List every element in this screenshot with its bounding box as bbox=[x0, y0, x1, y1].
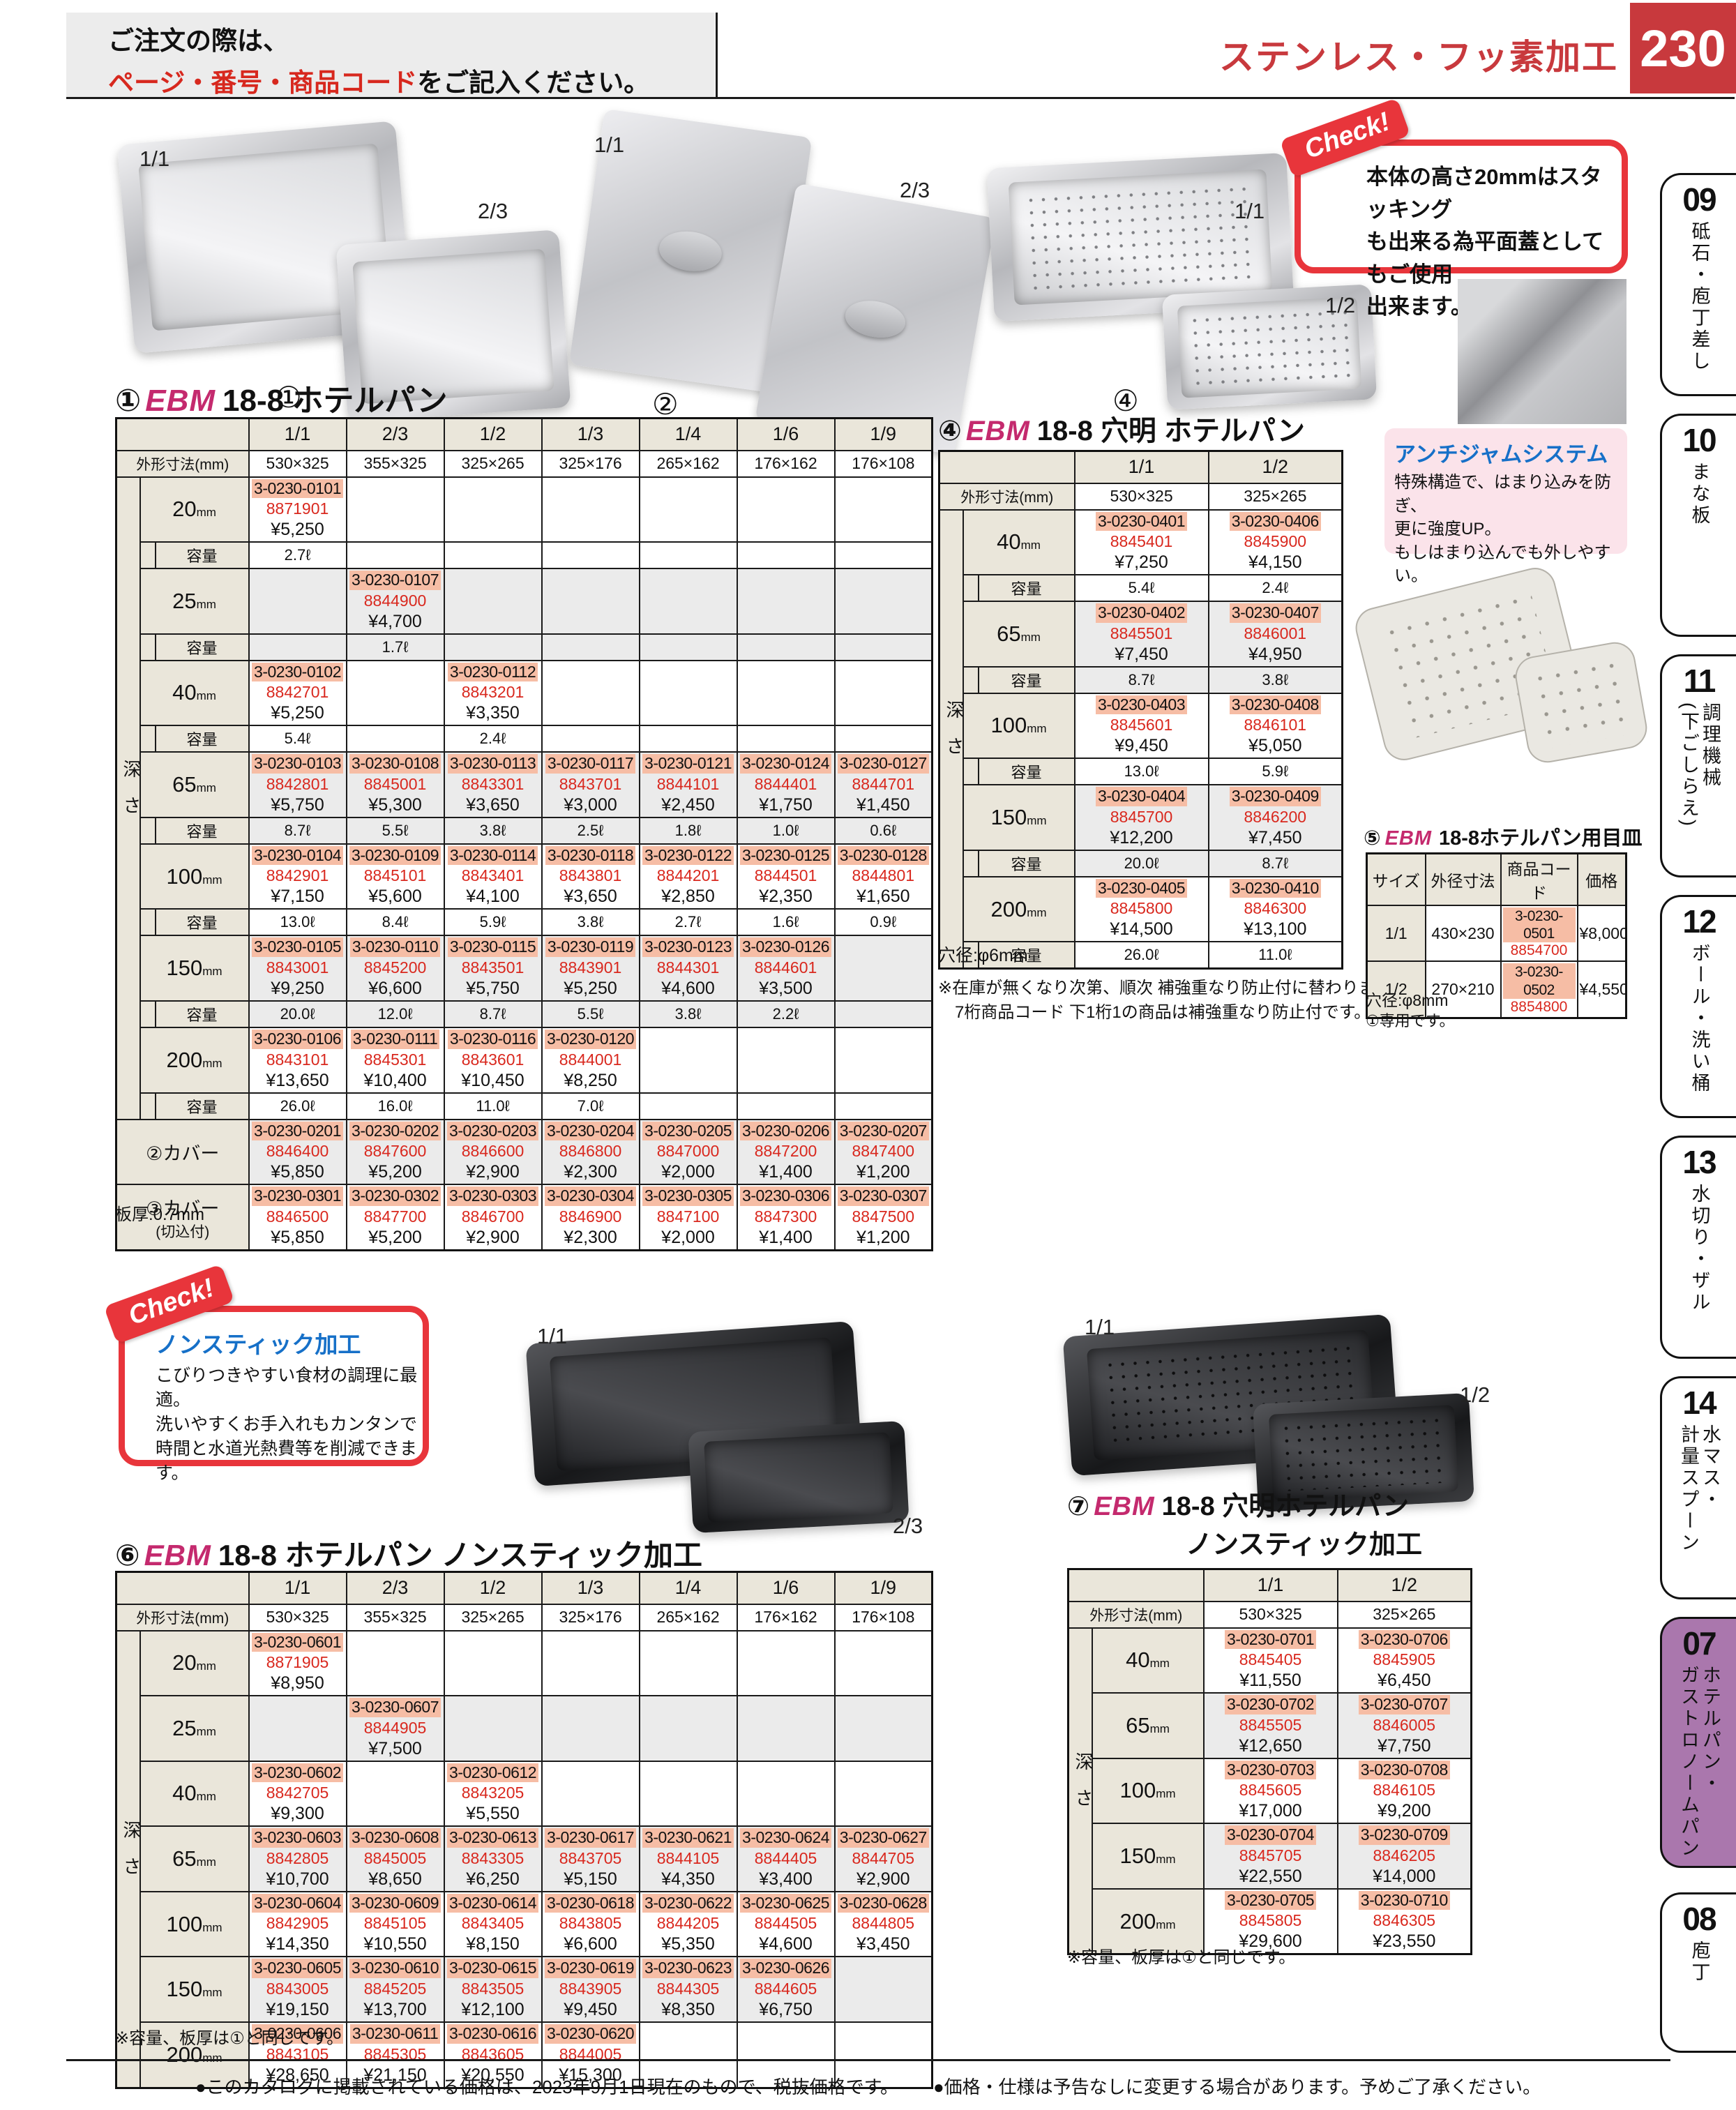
product-cell-empty bbox=[640, 1027, 737, 1093]
antijam-feature-box: アンチジャムシステム 特殊構造で、はまり込みを防ぎ、 更に強度UP。 もしはまり… bbox=[1384, 428, 1627, 554]
capacity-cell: 2.5ℓ bbox=[542, 817, 640, 844]
plate-thickness-note: 板厚:0.7mm bbox=[115, 1203, 204, 1228]
tab-label: ホテルパン・ ガストロノームパン bbox=[1677, 1665, 1721, 1860]
dims-header: 外形寸法(mm) bbox=[116, 1604, 249, 1631]
product-cell-empty bbox=[835, 568, 933, 634]
dim-cell: 325×265 bbox=[1209, 483, 1343, 510]
product-cell-empty bbox=[542, 661, 640, 726]
capacity-label: 容量 bbox=[156, 1093, 249, 1120]
dim-cell: 355×325 bbox=[347, 451, 444, 477]
product-cell: 3-0230-04098846200¥7,450 bbox=[1209, 785, 1343, 850]
product-cell-empty bbox=[835, 1696, 933, 1761]
column-header: 2/3 bbox=[347, 1572, 444, 1604]
capacity-cell bbox=[835, 634, 933, 661]
product-cell: 3-0230-01138843301¥3,650 bbox=[444, 752, 542, 817]
sidebar-tab-13: 13水切り・ザル bbox=[1660, 1136, 1736, 1359]
capacity-cell: 13.0ℓ bbox=[1075, 758, 1209, 785]
dims-header: 外形寸法(mm) bbox=[116, 451, 249, 477]
product-cell: 3-0230-06028842705¥9,300 bbox=[249, 1761, 347, 1827]
price-cell: ¥4,550 bbox=[1578, 961, 1626, 1018]
dim-cell: 176×162 bbox=[737, 451, 835, 477]
product-cell: 3-0230-01178843701¥3,000 bbox=[542, 752, 640, 817]
section-number: ① bbox=[115, 384, 141, 418]
capacity-label: 容量 bbox=[156, 725, 249, 752]
column-header: 外径寸法 bbox=[1426, 854, 1501, 906]
tab-number: 07 bbox=[1682, 1625, 1715, 1662]
pan-size-label: 1/1 bbox=[1085, 1315, 1115, 1340]
spacer-cell bbox=[140, 817, 156, 844]
product-cell: 3-0230-04018845401¥7,250 bbox=[1075, 510, 1209, 575]
capacity-cell: 0.6ℓ bbox=[835, 817, 933, 844]
capacity-cell: 2.4ℓ bbox=[1209, 575, 1343, 601]
product-cell: 3-0230-03058847100¥2,000 bbox=[640, 1184, 737, 1250]
product-cell: 3-0230-01038842801¥5,750 bbox=[249, 752, 347, 817]
product-cell-empty bbox=[835, 1027, 933, 1093]
product-cell: 3-0230-04038845601¥9,450 bbox=[1075, 693, 1209, 759]
capacity-cell: 3.8ℓ bbox=[1209, 667, 1343, 693]
depth-label: 150mm bbox=[963, 785, 1075, 850]
dim-cell: 325×176 bbox=[542, 1604, 640, 1631]
column-header: 1/9 bbox=[835, 1572, 933, 1604]
column-header: 商品コード bbox=[1501, 854, 1578, 906]
product-cell: 3-0230-01248844401¥1,750 bbox=[737, 752, 835, 817]
product-cell: 3-0230-07108846305¥23,550 bbox=[1338, 1889, 1472, 1954]
product-cell: 3-0230-04068845900¥4,150 bbox=[1209, 510, 1343, 575]
product-cell-empty bbox=[737, 1696, 835, 1761]
depth-label: 40mm bbox=[963, 510, 1075, 575]
table-corner bbox=[116, 419, 249, 451]
product-cell: 3-0230-01168843601¥10,450 bbox=[444, 1027, 542, 1093]
tab-label: 調理機械 (下ごしらえ) bbox=[1677, 702, 1721, 829]
brand-logo: EBM bbox=[966, 416, 1030, 446]
depth-label: 150mm bbox=[1092, 1823, 1204, 1889]
section-title-1: ①EBM18-8 ホテルパン bbox=[115, 375, 448, 420]
column-header: 1/3 bbox=[542, 1572, 640, 1604]
product-cell-empty bbox=[835, 935, 933, 1001]
capacity-cell bbox=[640, 1093, 737, 1120]
product-cell-empty bbox=[737, 1761, 835, 1827]
product-cell-empty bbox=[737, 477, 835, 543]
capacity-label: 容量 bbox=[156, 817, 249, 844]
section-number: ④ bbox=[938, 416, 962, 446]
sidebar-tab-09: 09砥石・庖丁差し bbox=[1660, 173, 1736, 396]
product-cell-empty bbox=[835, 477, 933, 543]
footer-change-note: ●価格・仕様は予告なしに変更する場合があります。予めご了承ください。 bbox=[933, 2073, 1541, 2099]
product-cell: 3-0230-03038846700¥2,900 bbox=[444, 1184, 542, 1250]
capacity-cell bbox=[542, 725, 640, 752]
order-note-line2: ページ・番号・商品コードをご記入ください。 bbox=[108, 61, 715, 99]
cover-size-label: 2/3 bbox=[900, 178, 930, 203]
section-name: 18-8 ホテルパン bbox=[222, 384, 448, 418]
capacity-cell: 5.5ℓ bbox=[347, 817, 444, 844]
column-header: 1/1 bbox=[1204, 1569, 1338, 1602]
tab-number: 13 bbox=[1682, 1143, 1715, 1181]
product-cell-empty bbox=[444, 1696, 542, 1761]
product-cell-empty bbox=[249, 568, 347, 634]
capacity-cell: 0.9ℓ bbox=[835, 909, 933, 935]
column-header: 1/2 bbox=[444, 1572, 542, 1604]
capacity-cell: 1.7ℓ bbox=[347, 634, 444, 661]
depth-axis-label: 深さ bbox=[1069, 1628, 1092, 1954]
dims-header: 外形寸法(mm) bbox=[939, 483, 1075, 510]
capacity-cell: 8.7ℓ bbox=[444, 1001, 542, 1027]
depth-label: 200mm bbox=[1092, 1889, 1204, 1954]
capacity-cell: 2.7ℓ bbox=[640, 909, 737, 935]
sidebar-tab-08: 08庖丁 bbox=[1660, 1892, 1736, 2053]
tab-label: 水切り・ザル bbox=[1688, 1184, 1709, 1313]
dims-header: 外形寸法(mm) bbox=[1069, 1602, 1204, 1628]
product-cell: 3-0230-06078844905¥7,500 bbox=[347, 1696, 444, 1761]
capacity-label: 容量 bbox=[979, 758, 1075, 785]
tab-label: 砥石・庖丁差し bbox=[1688, 221, 1709, 372]
product-cell: 3-0230-06038842805¥10,700 bbox=[249, 1826, 347, 1892]
spacer-cell bbox=[140, 909, 156, 935]
capacity-cell bbox=[640, 634, 737, 661]
product-cell-empty bbox=[640, 477, 737, 543]
depth-label: 40mm bbox=[140, 661, 249, 726]
tab-label: ボール・洗い桶 bbox=[1688, 943, 1709, 1094]
column-header: 1/3 bbox=[542, 419, 640, 451]
spacer-cell bbox=[140, 634, 156, 661]
column-header: サイズ bbox=[1367, 854, 1426, 906]
dim-cell: 265×162 bbox=[640, 451, 737, 477]
size-cell: 1/1 bbox=[1367, 905, 1426, 961]
nonstick-title: ノンスティック加工 bbox=[156, 1326, 423, 1359]
product-cell: 3-0230-01208844001¥8,250 bbox=[542, 1027, 640, 1093]
table-corner bbox=[116, 1572, 249, 1604]
capacity-label: 容量 bbox=[979, 575, 1075, 601]
column-header: 1/1 bbox=[1075, 451, 1209, 483]
nonstick-pan-photo-2-3 bbox=[688, 1421, 909, 1533]
product-cell: 3-0230-02078847400¥1,200 bbox=[835, 1120, 933, 1185]
capacity-cell: 5.9ℓ bbox=[444, 909, 542, 935]
order-note-red: ページ・番号・商品コード bbox=[108, 68, 417, 97]
depth-label: 100mm bbox=[1092, 1758, 1204, 1824]
dim-cell: 530×325 bbox=[1075, 483, 1209, 510]
product-cell: 3-0230-01058843001¥9,250 bbox=[249, 935, 347, 1001]
order-note-box: ご注文の際は、 ページ・番号・商品コードをご記入ください。 bbox=[66, 13, 715, 98]
column-header: 1/9 bbox=[835, 419, 933, 451]
product-cell: 3-0230-06148843405¥8,150 bbox=[444, 1892, 542, 1957]
product-cell-empty bbox=[640, 568, 737, 634]
product-cell-empty bbox=[444, 1631, 542, 1696]
antijam-body: 特殊構造で、はまり込みを防ぎ、 更に強度UP。 もしはまり込んでも外しやすい。 bbox=[1394, 471, 1617, 588]
product-cell: 3-0230-06018871905¥8,950 bbox=[249, 1631, 347, 1696]
capacity-label: 容量 bbox=[156, 634, 249, 661]
footer-rule bbox=[66, 2059, 1670, 2061]
product-cell: 3-0230-06228844205¥5,350 bbox=[640, 1892, 737, 1957]
product-cell: 3-0230-04088846101¥5,050 bbox=[1209, 693, 1343, 759]
dim-cell: 325×176 bbox=[542, 451, 640, 477]
product-cell: 3-0230-07088846105¥9,200 bbox=[1338, 1758, 1472, 1824]
product-cell: 3-0230-01188843801¥3,650 bbox=[542, 844, 640, 910]
column-header: 1/4 bbox=[640, 419, 737, 451]
footer: ●このカタログに掲載されている価格は、2023年9月1日現在のもので、税抜価格で… bbox=[0, 2073, 1736, 2099]
product-photo-group-6: 1/1 2/3 bbox=[488, 1297, 942, 1535]
section-name: 18-8 穴明ホテルパン bbox=[1162, 1492, 1410, 1521]
capacity-label: 容量 bbox=[979, 850, 1075, 877]
column-header: 1/1 bbox=[249, 1572, 347, 1604]
pan-size-label: 1/2 bbox=[1460, 1382, 1490, 1408]
depth-label: 65mm bbox=[140, 752, 249, 817]
column-header: 1/1 bbox=[249, 419, 347, 451]
spacer-cell bbox=[963, 758, 979, 785]
section-name-line2: ノンスティック加工 bbox=[1186, 1523, 1422, 1561]
pan-size-label: 2/3 bbox=[893, 1514, 923, 1539]
depth-label: 150mm bbox=[140, 1957, 249, 2022]
tab-number: 10 bbox=[1682, 421, 1715, 459]
hole-size-note-4: 穴径:φ6mm bbox=[938, 943, 1028, 968]
capacity-cell bbox=[737, 1093, 835, 1120]
depth-axis-label: 深さ bbox=[116, 1631, 140, 2088]
tab-number: 14 bbox=[1682, 1384, 1715, 1422]
product-cell: 3-0230-07058845805¥29,600 bbox=[1204, 1889, 1338, 1954]
capacity-cell: 20.0ℓ bbox=[1075, 850, 1209, 877]
product-cell: 3-0230-01078844900¥4,700 bbox=[347, 568, 444, 634]
product-cell-empty bbox=[835, 661, 933, 726]
antijam-corner-photo bbox=[1458, 279, 1626, 424]
product-cell-empty bbox=[347, 661, 444, 726]
product-cell: 3-0230-02058847000¥2,000 bbox=[640, 1120, 737, 1185]
section-name: 18-8 ホテルパン ノンスティック加工 bbox=[218, 1539, 702, 1572]
tab-number: 12 bbox=[1682, 903, 1715, 940]
sidebar-tab-14: 14水マス・ 計量スプーン bbox=[1660, 1376, 1736, 1599]
capacity-cell bbox=[835, 725, 933, 752]
product-cell-empty bbox=[835, 1957, 933, 2022]
capacity-cell: 1.6ℓ bbox=[737, 909, 835, 935]
capacity-label: 容量 bbox=[979, 667, 1075, 693]
product-cell: 3-0230-06058843005¥19,150 bbox=[249, 1957, 347, 2022]
product-cell-empty bbox=[640, 1631, 737, 1696]
depth-label: 200mm bbox=[140, 1027, 249, 1093]
capacity-cell bbox=[249, 634, 347, 661]
category-title: ステンレス・フッ素加工 bbox=[963, 29, 1618, 80]
product-cell: 3-0230-01108845200¥6,600 bbox=[347, 935, 444, 1001]
product-cell: 3-0230-04108846300¥13,100 bbox=[1209, 877, 1343, 942]
pan-size-label: 1/1 bbox=[139, 146, 169, 172]
pan-size-label: 2/3 bbox=[478, 199, 508, 224]
pan-size-label: 1/2 bbox=[1325, 293, 1355, 318]
product-cell: 3-0230-06088845005¥8,650 bbox=[347, 1826, 444, 1892]
capacity-cell bbox=[444, 634, 542, 661]
sidebar-tab-10: 10まな板 bbox=[1660, 414, 1736, 637]
depth-label: 25mm bbox=[140, 568, 249, 634]
circled-number-2: ② bbox=[652, 387, 679, 421]
capacity-cell: 5.5ℓ bbox=[542, 1001, 640, 1027]
product-cell: 3-0230-06178843705¥5,150 bbox=[542, 1826, 640, 1892]
product-cell: 3-0230-02018846400¥5,850 bbox=[249, 1120, 347, 1185]
product-cell: 3-0230-04028845501¥7,450 bbox=[1075, 601, 1209, 667]
dim-cell: 530×325 bbox=[249, 1604, 347, 1631]
section-title-6: ⑥EBM18-8 ホテルパン ノンスティック加工 bbox=[115, 1532, 702, 1574]
product-cell: 3-0230-01258844501¥2,350 bbox=[737, 844, 835, 910]
brand-logo: EBM bbox=[144, 1539, 211, 1572]
product-cell: 3-0230-07048845705¥22,550 bbox=[1204, 1823, 1338, 1889]
page-number-box: 230 bbox=[1630, 3, 1736, 93]
capacity-label: 容量 bbox=[156, 542, 249, 568]
product-cell: 3-0230-01088845001¥5,300 bbox=[347, 752, 444, 817]
product-cell-empty bbox=[347, 1631, 444, 1696]
tab-label: 庖丁 bbox=[1688, 1941, 1709, 1984]
product-cell-empty bbox=[444, 568, 542, 634]
footer-price-note: ●このカタログに掲載されている価格は、2023年9月1日現在のもので、税抜価格で… bbox=[195, 2073, 898, 2099]
capacity-cell: 5.9ℓ bbox=[1209, 758, 1343, 785]
depth-label: 40mm bbox=[1092, 1628, 1204, 1694]
capacity-cell bbox=[737, 725, 835, 752]
product-cell: 3-0230-01068843101¥13,650 bbox=[249, 1027, 347, 1093]
depth-axis-label: 深さ bbox=[939, 510, 963, 969]
order-note-line1: ご注文の際は、 bbox=[108, 20, 715, 57]
product-cell: 3-0230-06238844305¥8,350 bbox=[640, 1957, 737, 2022]
product-cell: 3-0230-04048845700¥12,200 bbox=[1075, 785, 1209, 850]
capacity-cell: 8.7ℓ bbox=[1209, 850, 1343, 877]
section-title-5: ⑤EBM18-8ホテルパン用目皿 bbox=[1364, 822, 1643, 851]
depth-label: 100mm bbox=[140, 1892, 249, 1957]
product-cell: 3-0230-01288844801¥1,650 bbox=[835, 844, 933, 910]
table-corner bbox=[939, 451, 1075, 483]
nonstick-body: こびりつきやすい食材の調理に最適。 洗いやすくお手入れもカンタンで 時間と水道光… bbox=[156, 1364, 423, 1486]
capacity-cell: 2.4ℓ bbox=[444, 725, 542, 752]
dim-cell: 176×108 bbox=[835, 1604, 933, 1631]
product-cell-empty bbox=[737, 661, 835, 726]
product-cell: 3-0230-07078846005¥7,750 bbox=[1338, 1693, 1472, 1758]
product-cell: 3-0230-06268844605¥6,750 bbox=[737, 1957, 835, 2022]
product-cell: 3-0230-06138843305¥6,250 bbox=[444, 1826, 542, 1892]
depth-label: 20mm bbox=[140, 477, 249, 543]
product-cell: 3-0230-03048846900¥2,300 bbox=[542, 1184, 640, 1250]
brand-logo: EBM bbox=[1094, 1492, 1154, 1521]
dim-cell: 430×230 bbox=[1426, 905, 1501, 961]
sidebar-tab-07: 07ホテルパン・ ガストロノームパン bbox=[1660, 1617, 1736, 1868]
dim-cell: 176×108 bbox=[835, 451, 933, 477]
product-cell: 3-0230-06158843505¥12,100 bbox=[444, 1957, 542, 2022]
capacity-cell bbox=[640, 725, 737, 752]
capacity-label: 容量 bbox=[156, 1001, 249, 1027]
depth-axis-label: 深さ bbox=[116, 477, 140, 1120]
product-cell: 3-0230-02038846600¥2,900 bbox=[444, 1120, 542, 1185]
tab-number: 08 bbox=[1682, 1900, 1715, 1938]
spacer-cell bbox=[963, 575, 979, 601]
capacity-cell: 8.7ℓ bbox=[249, 817, 347, 844]
product-cell-empty bbox=[542, 568, 640, 634]
product-cell-empty bbox=[640, 661, 737, 726]
column-header: 1/2 bbox=[444, 419, 542, 451]
check-callout-nonstick: Check! ノンスティック加工 こびりつきやすい食材の調理に最適。 洗いやすく… bbox=[119, 1306, 429, 1466]
depth-label: 200mm bbox=[963, 877, 1075, 942]
capacity-cell: 20.0ℓ bbox=[249, 1001, 347, 1027]
stock-replacement-note: ※在庫が無くなり次第、順次 補強重なり防止付に替わります。 7桁商品コード 下1… bbox=[938, 977, 1407, 1025]
product-cell-empty bbox=[542, 1631, 640, 1696]
product-cell: 3-0230-06098845105¥10,550 bbox=[347, 1892, 444, 1957]
column-header: 1/6 bbox=[737, 1572, 835, 1604]
antijam-title: アンチジャムシステム bbox=[1394, 437, 1617, 468]
product-cell: 3-0230-03068847300¥1,400 bbox=[737, 1184, 835, 1250]
section-title-7: ⑦EBM18-8 穴明ホテルパン ノンスティック加工 bbox=[1067, 1484, 1422, 1561]
product-cell-empty bbox=[542, 1696, 640, 1761]
product-cell-empty bbox=[542, 477, 640, 543]
product-cell: 3-0230-04058845800¥14,500 bbox=[1075, 877, 1209, 942]
capacity-cell: 1.0ℓ bbox=[737, 817, 835, 844]
pan-size-label: 1/1 bbox=[537, 1324, 567, 1349]
code-cell: 3-0230-05028854800 bbox=[1501, 961, 1578, 1018]
product-cell: 3-0230-07028845505¥12,650 bbox=[1204, 1693, 1338, 1758]
nonstick-perforated-pan-price-table: 1/11/2外形寸法(mm)530×325325×265深さ40mm3-0230… bbox=[1067, 1568, 1472, 1955]
dim-cell: 325×265 bbox=[1338, 1602, 1472, 1628]
perforated-pan-price-table: 1/11/2外形寸法(mm)530×325325×265深さ40mm3-0230… bbox=[938, 450, 1343, 970]
capacity-thickness-note-7: ※容量、板厚は①と同じです。 bbox=[1067, 1946, 1295, 1970]
pan-size-label: 1/1 bbox=[1235, 199, 1265, 224]
section-title-4: ④EBM18-8 穴明 ホテルパン bbox=[938, 408, 1305, 449]
code-cell: 3-0230-05018854700 bbox=[1501, 905, 1578, 961]
check-callout-stacking: Check! 本体の高さ20mmはスタッキング も出来る為平面蓋としてもご使用 … bbox=[1295, 140, 1628, 273]
product-cell: 3-0230-06218844105¥4,350 bbox=[640, 1826, 737, 1892]
product-cell: 3-0230-07018845405¥11,550 bbox=[1204, 1628, 1338, 1694]
depth-label: 40mm bbox=[140, 1761, 249, 1827]
capacity-cell: 3.8ℓ bbox=[640, 1001, 737, 1027]
capacity-cell: 11.0ℓ bbox=[1209, 942, 1343, 969]
capacity-cell bbox=[542, 542, 640, 568]
price-cell: ¥8,000 bbox=[1578, 905, 1626, 961]
product-cell-empty bbox=[640, 1696, 737, 1761]
sidebar-tab-12: 12ボール・洗い桶 bbox=[1660, 895, 1736, 1118]
column-header: 1/6 bbox=[737, 419, 835, 451]
capacity-cell: 16.0ℓ bbox=[347, 1093, 444, 1120]
capacity-label: 容量 bbox=[156, 909, 249, 935]
product-cell: 3-0230-01148843401¥4,100 bbox=[444, 844, 542, 910]
header-divider bbox=[716, 13, 718, 97]
product-photo-group-7: 1/1 1/2 bbox=[1046, 1290, 1493, 1514]
spacer-cell bbox=[140, 725, 156, 752]
tab-number: 11 bbox=[1684, 662, 1715, 700]
page-number: 230 bbox=[1640, 19, 1726, 78]
capacity-cell: 8.7ℓ bbox=[1075, 667, 1209, 693]
product-cell: 3-0230-01128843201¥3,350 bbox=[444, 661, 542, 726]
capacity-cell bbox=[835, 1001, 933, 1027]
capacity-cell: 7.0ℓ bbox=[542, 1093, 640, 1120]
capacity-cell: 2.7ℓ bbox=[249, 542, 347, 568]
table-corner bbox=[1069, 1569, 1204, 1602]
product-cell: 3-0230-01118845301¥10,400 bbox=[347, 1027, 444, 1093]
spacer-cell bbox=[140, 1001, 156, 1027]
product-cell-empty bbox=[737, 568, 835, 634]
product-cell-empty bbox=[640, 1761, 737, 1827]
column-header: 価格 bbox=[1578, 854, 1626, 906]
header-rule bbox=[66, 97, 1735, 99]
product-cell: 3-0230-01098845101¥5,600 bbox=[347, 844, 444, 910]
capacity-cell bbox=[347, 542, 444, 568]
cover-size-label: 1/1 bbox=[594, 133, 624, 158]
product-cell: 3-0230-06258844505¥4,600 bbox=[737, 1892, 835, 1957]
brand-logo: EBM bbox=[145, 384, 216, 418]
dim-cell: 265×162 bbox=[640, 1604, 737, 1631]
section-number: ⑦ bbox=[1067, 1492, 1089, 1521]
depth-label: 25mm bbox=[140, 1696, 249, 1761]
tab-label: まな板 bbox=[1688, 462, 1709, 527]
product-cell: 3-0230-06278844705¥2,900 bbox=[835, 1826, 933, 1892]
product-cell-empty bbox=[737, 1631, 835, 1696]
dim-cell: 530×325 bbox=[249, 451, 347, 477]
spacer-cell bbox=[963, 850, 979, 877]
product-cell: 3-0230-07098846205¥14,000 bbox=[1338, 1823, 1472, 1889]
capacity-cell bbox=[444, 542, 542, 568]
product-cell: 3-0230-01198843901¥5,250 bbox=[542, 935, 640, 1001]
product-cell: 3-0230-01278844701¥1,450 bbox=[835, 752, 933, 817]
product-cell: 3-0230-01268844601¥3,500 bbox=[737, 935, 835, 1001]
product-cell: 3-0230-04078846001¥4,950 bbox=[1209, 601, 1343, 667]
capacity-cell: 5.4ℓ bbox=[249, 725, 347, 752]
column-header: 1/4 bbox=[640, 1572, 737, 1604]
product-cell: 3-0230-02028847600¥5,200 bbox=[347, 1120, 444, 1185]
